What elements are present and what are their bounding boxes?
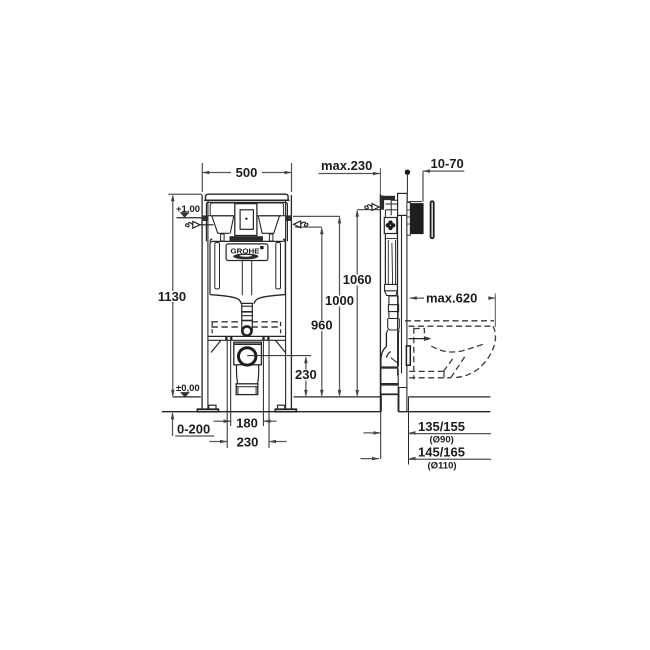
- svg-text:(Ø110): (Ø110): [428, 460, 457, 471]
- svg-text:500: 500: [236, 165, 258, 180]
- svg-text:10-70: 10-70: [431, 156, 464, 171]
- svg-text:max.620: max.620: [426, 291, 477, 306]
- svg-text:145/165: 145/165: [418, 445, 465, 460]
- svg-text:180: 180: [236, 416, 258, 431]
- svg-text:1060: 1060: [343, 272, 372, 287]
- svg-text:max.230: max.230: [321, 158, 372, 173]
- svg-text:230: 230: [237, 435, 259, 450]
- svg-text:1130: 1130: [158, 289, 186, 304]
- svg-text:0-200: 0-200: [177, 422, 210, 437]
- svg-text:1000: 1000: [325, 293, 354, 308]
- svg-text:230: 230: [295, 367, 317, 382]
- svg-text:960: 960: [311, 318, 333, 333]
- svg-text:135/155: 135/155: [418, 419, 465, 434]
